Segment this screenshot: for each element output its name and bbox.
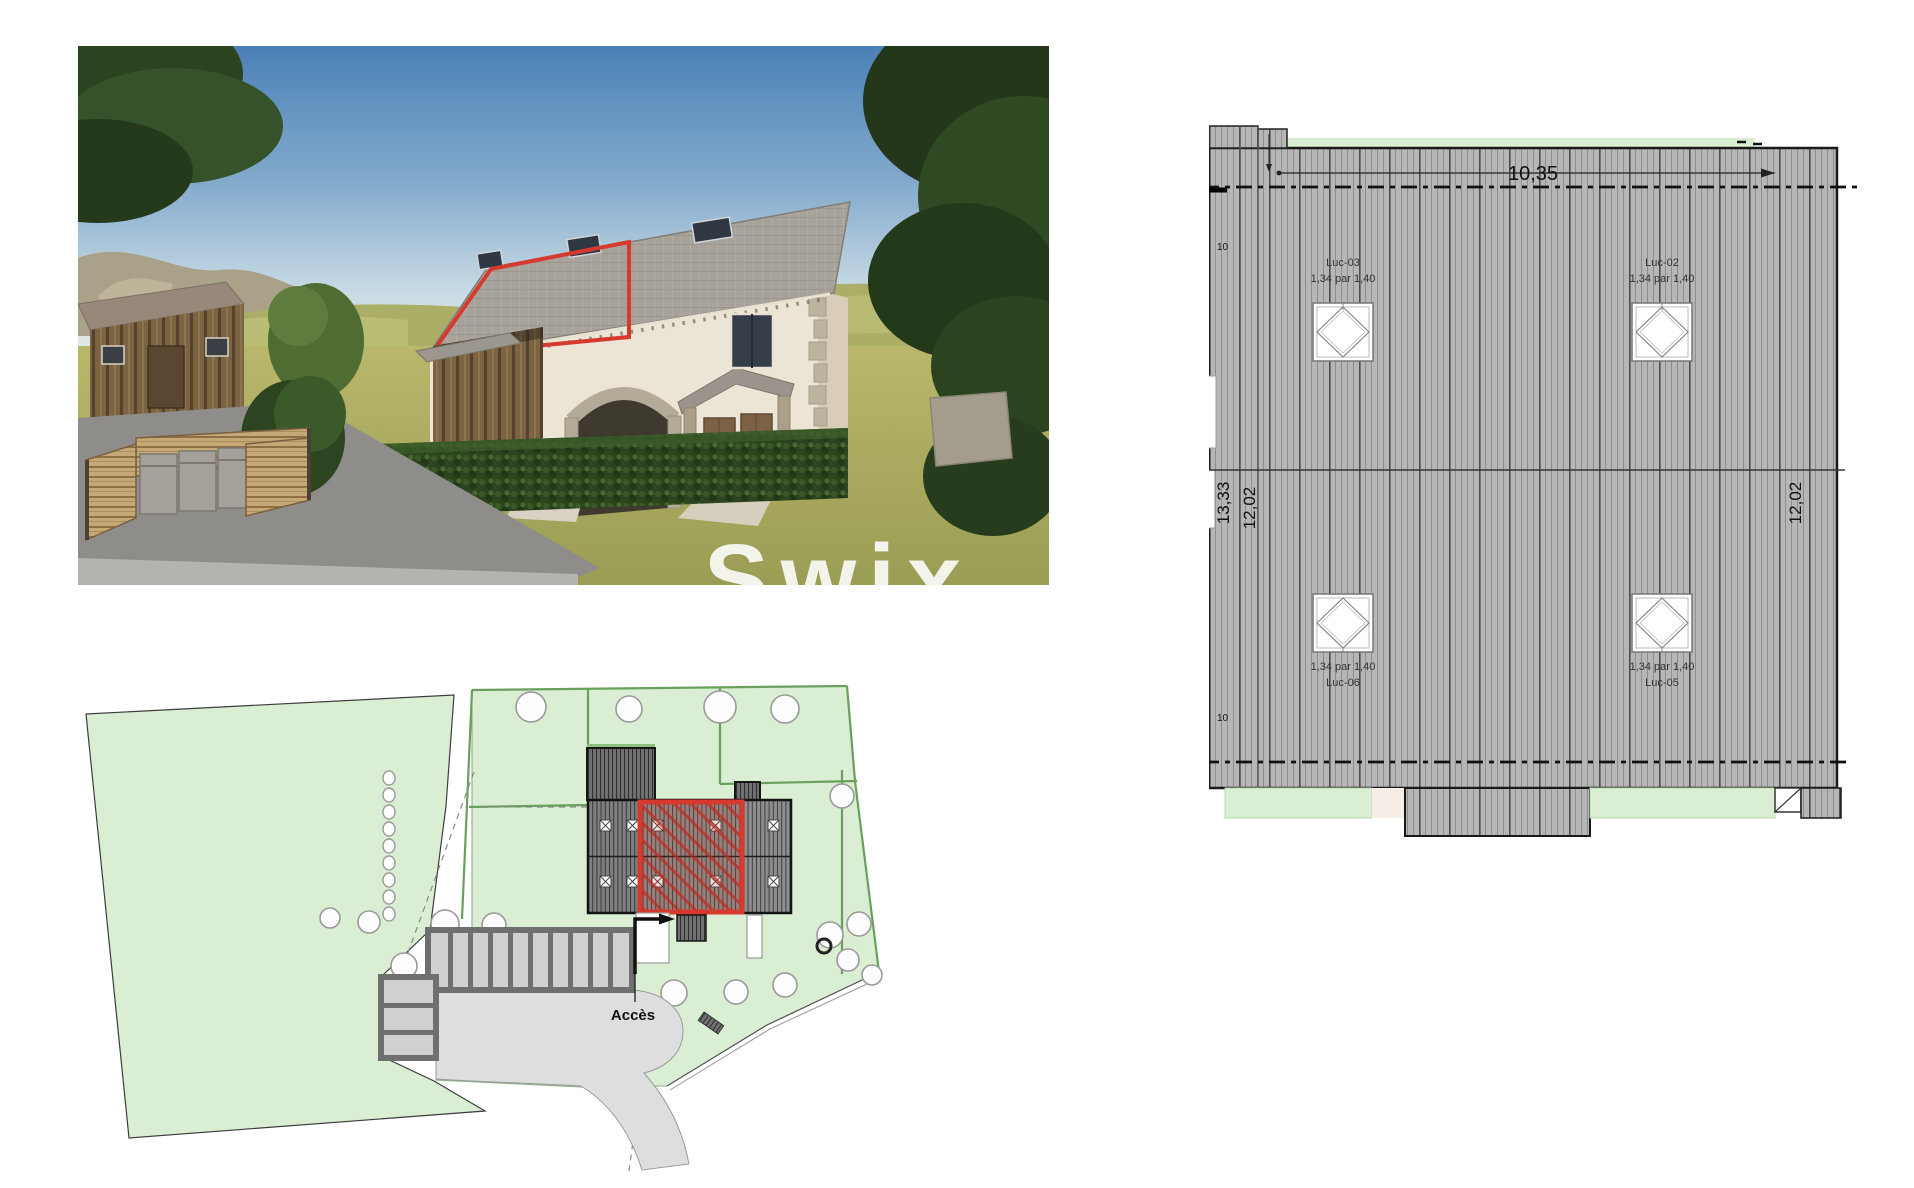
porch-roof <box>677 915 706 941</box>
parking-row-horizontal <box>428 930 632 990</box>
roof-plan: 10,35 10 10 13,33 12,02 12,02 Luc-03 1,3… <box>1209 118 1869 860</box>
lower-roof-section <box>1405 788 1590 836</box>
highlighted-unit <box>640 802 742 912</box>
post-column <box>383 771 395 921</box>
skylight-luc02: Luc-02 1,34 par 1,40 <box>1630 257 1695 361</box>
site-plan: Accès <box>84 674 884 1174</box>
dim-right-span: 12,02 <box>1786 482 1805 525</box>
waste-bins <box>140 448 255 514</box>
dim-left-span: 12,02 <box>1240 487 1259 530</box>
access-label: Accès <box>611 1007 655 1024</box>
render-scene: Swix <box>78 46 1049 585</box>
gutter-slot-1 <box>1209 376 1216 448</box>
luc05-size: 1,34 par 1,40 <box>1630 661 1695 673</box>
exterior-render-photo[interactable]: Swix <box>78 46 1049 585</box>
luc05-name: Luc-05 <box>1645 677 1679 689</box>
skylight-luc03: Luc-03 1,34 par 1,40 <box>1311 257 1376 361</box>
luc02-name: Luc-02 <box>1645 257 1679 269</box>
site-plan-drawing[interactable]: Accès <box>84 674 884 1174</box>
eave-step-block <box>1258 129 1287 148</box>
luc06-size: 1,34 par 1,40 <box>1311 661 1376 673</box>
dim-left-total: 13,33 <box>1214 482 1233 525</box>
small-annex <box>735 782 760 800</box>
luc03-size: 1,34 par 1,40 <box>1311 273 1376 285</box>
watermark-text: Swix <box>704 524 973 585</box>
roof-plan-drawing[interactable]: 10,35 10 10 13,33 12,02 12,02 Luc-03 1,3… <box>1209 118 1869 860</box>
luc06-name: Luc-06 <box>1326 677 1360 689</box>
top-green-strip <box>1209 138 1755 148</box>
roof-surface <box>1209 148 1837 788</box>
barn-annex-roof <box>587 748 655 800</box>
dim-width-label: 10,35 <box>1508 163 1558 185</box>
eave-bottom-label: 10 <box>1217 713 1229 724</box>
luc02-size: 1,34 par 1,40 <box>1630 273 1695 285</box>
stone-block <box>930 392 1012 466</box>
terrace-right <box>747 915 762 958</box>
eave-top-label: 10 <box>1217 242 1229 253</box>
parking-row-vertical <box>381 977 436 1058</box>
luc03-name: Luc-03 <box>1326 257 1360 269</box>
eave-step-band <box>1209 126 1258 148</box>
corner-hatch <box>1801 788 1841 818</box>
